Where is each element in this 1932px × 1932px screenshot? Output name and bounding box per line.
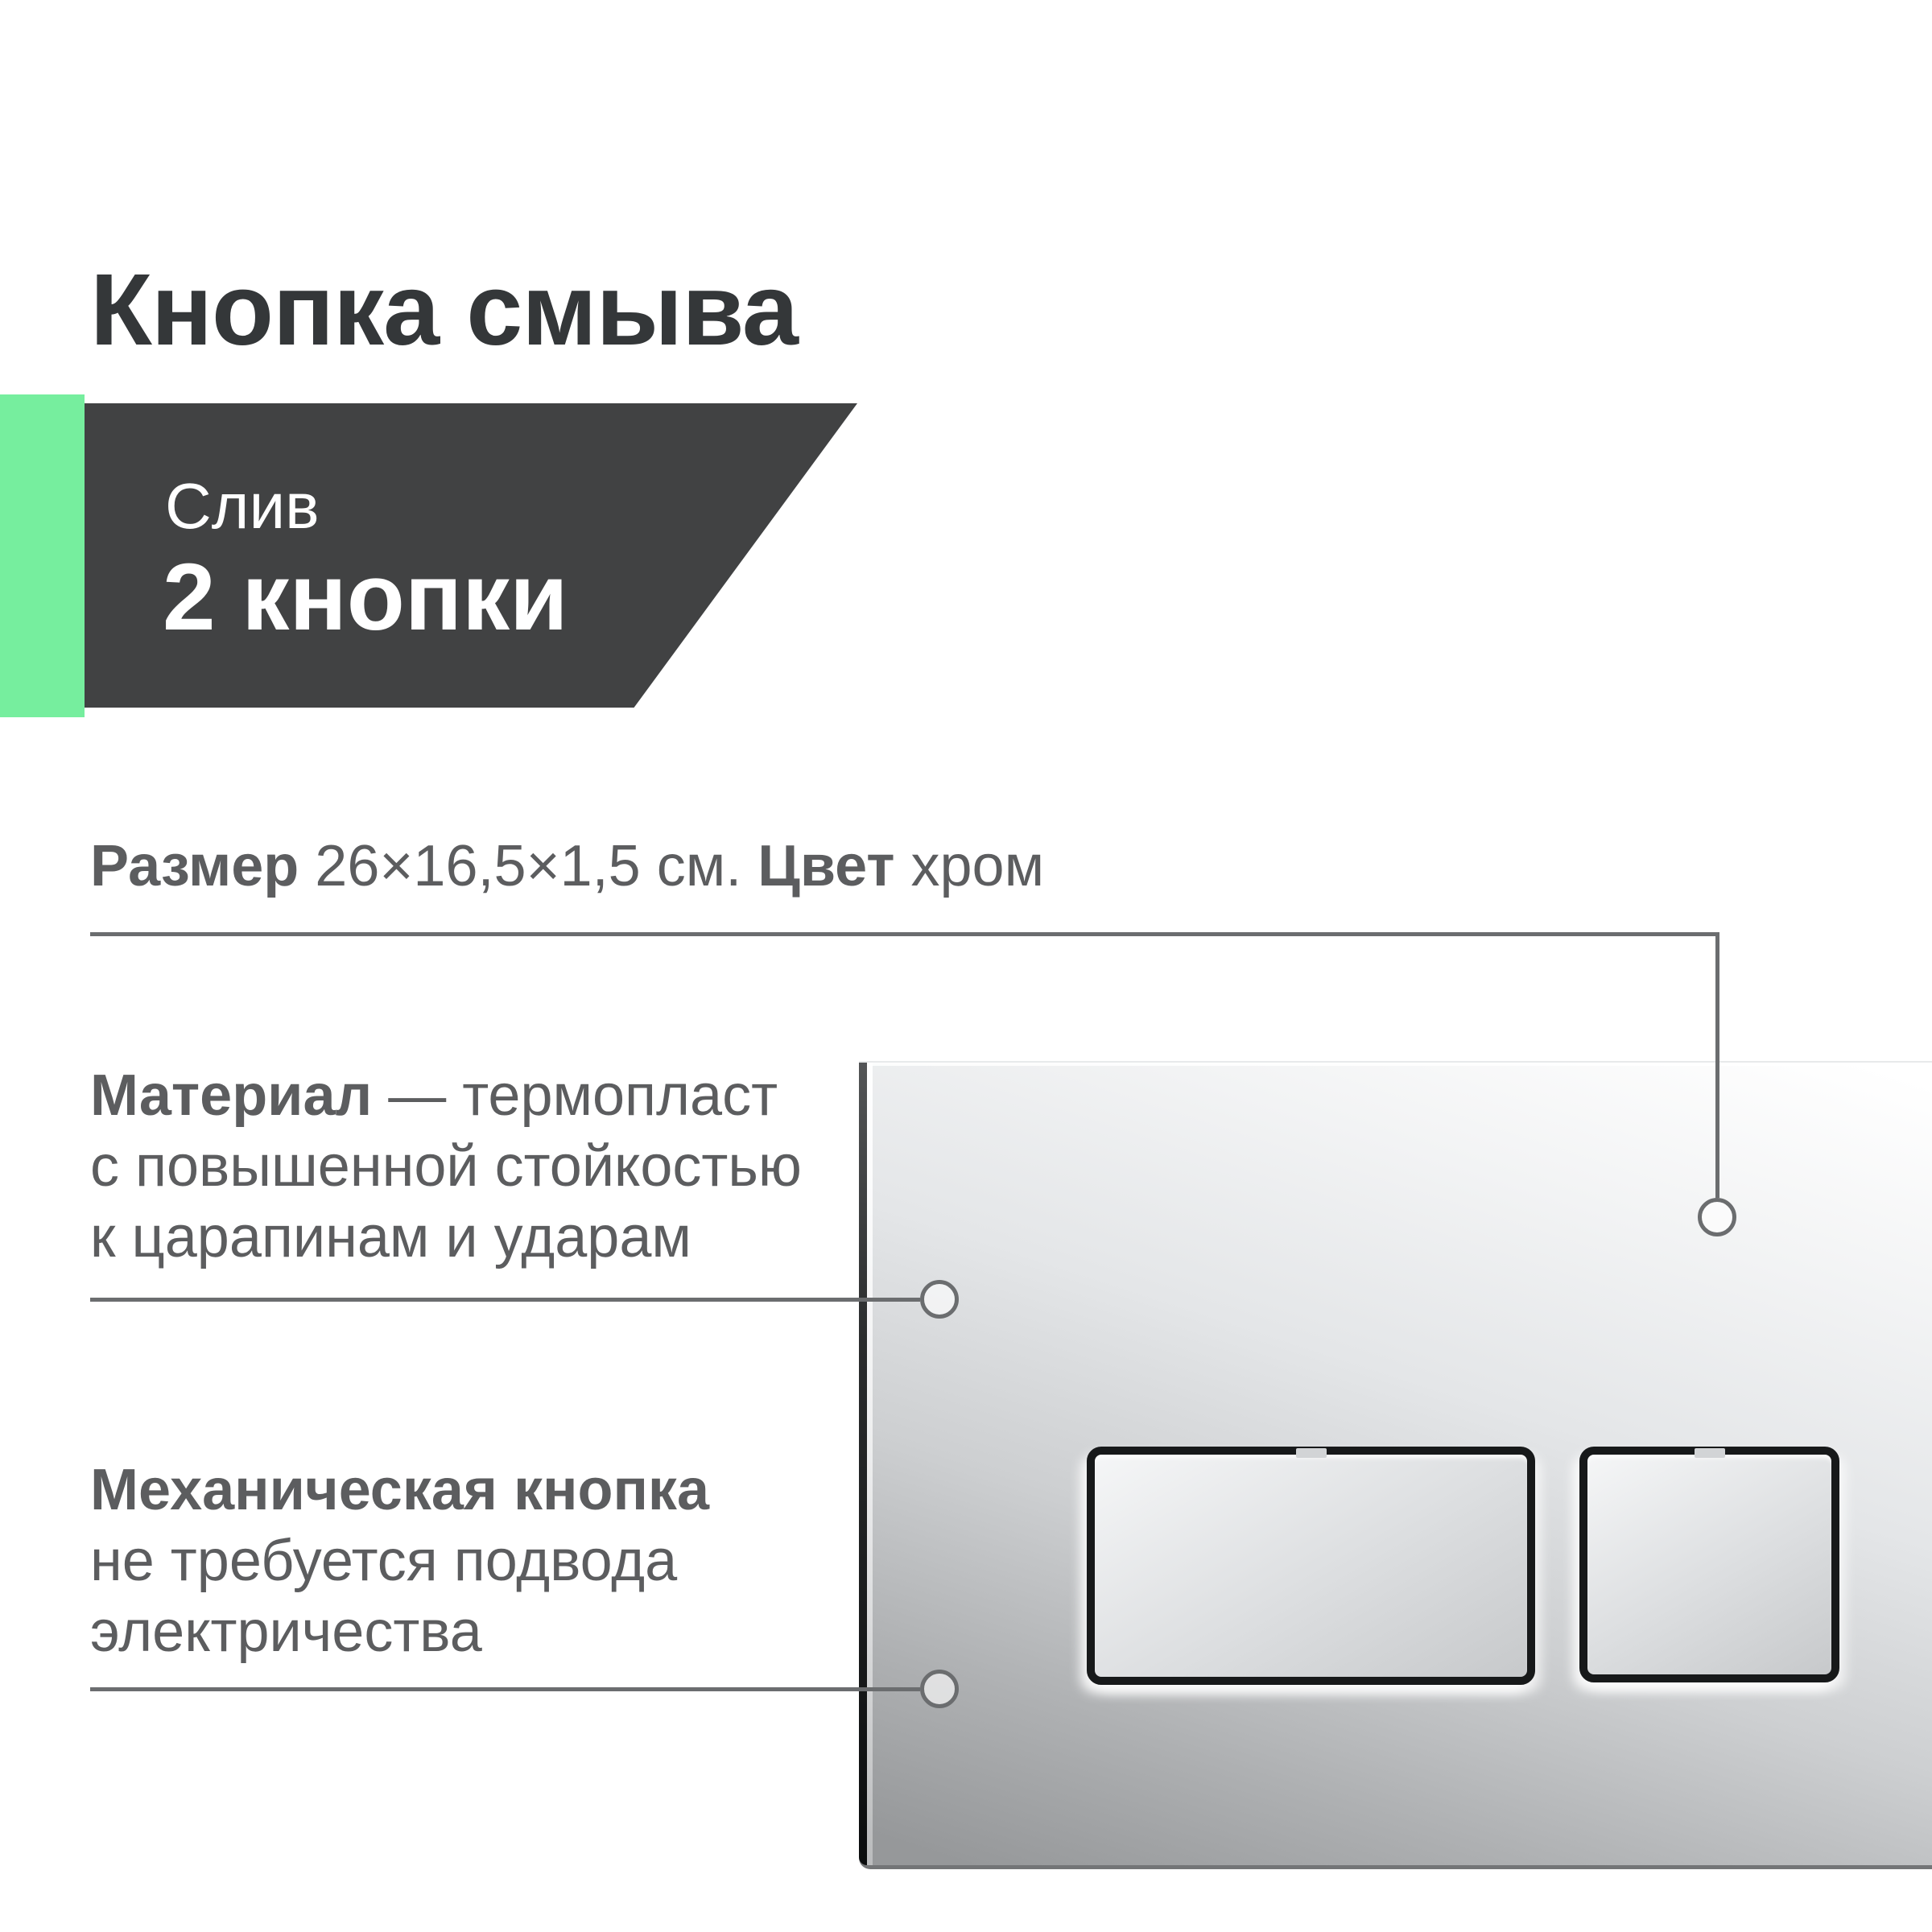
callout-rule-size xyxy=(90,932,1719,936)
specs-size-label: Размер xyxy=(90,834,299,898)
green-accent-bar xyxy=(0,394,85,717)
material-paragraph: Материал — термопласт с повышенной стойк… xyxy=(90,1060,802,1273)
callout-dot-size xyxy=(1698,1198,1736,1236)
button-notch xyxy=(1695,1448,1725,1458)
flush-plate-photo xyxy=(859,1061,1932,1869)
callout-drop-size xyxy=(1715,932,1719,1198)
mechanical-line-2: не требуется подвода xyxy=(90,1525,709,1596)
flush-button-large xyxy=(1087,1447,1535,1685)
button-notch xyxy=(1296,1448,1327,1458)
material-line-1: Материал — термопласт xyxy=(90,1060,802,1131)
page-title: Кнопка смыва xyxy=(90,259,798,361)
mechanical-line-3: электричества xyxy=(90,1596,709,1667)
callout-dot-mechanical xyxy=(920,1670,959,1708)
specs-color-value: хром xyxy=(911,834,1045,898)
infographic-canvas: Кнопка смыва Слив 2 кнопки Размер 26×16,… xyxy=(0,0,1932,1932)
flush-button-small xyxy=(1579,1447,1839,1682)
callout-rule-mechanical xyxy=(90,1687,920,1691)
badge-subtitle: Слив xyxy=(165,474,320,539)
material-line-2: с повышенной стойкостью xyxy=(90,1131,802,1202)
callout-dot-material xyxy=(920,1280,959,1319)
mechanical-paragraph: Механическая кнопка не требуется подвода… xyxy=(90,1455,709,1667)
feature-badge: Слив 2 кнопки xyxy=(85,403,857,708)
mechanical-line-1: Механическая кнопка xyxy=(90,1455,709,1525)
material-lead: Материал xyxy=(90,1063,372,1128)
specs-color-label: Цвет xyxy=(758,834,894,898)
plate-top-highlight xyxy=(867,1063,1930,1066)
material-line-1-rest: — термопласт xyxy=(388,1063,778,1128)
specs-line: Размер 26×16,5×1,5 см. Цвет хром xyxy=(90,837,1044,895)
callout-rule-material xyxy=(90,1298,920,1302)
material-line-3: к царапинам и ударам xyxy=(90,1202,802,1273)
plate-left-edge xyxy=(859,1063,867,1865)
specs-size-value: 26×16,5×1,5 см. xyxy=(315,834,741,898)
badge-title: 2 кнопки xyxy=(163,550,568,645)
plate-left-highlight xyxy=(867,1063,873,1865)
mechanical-lead: Механическая кнопка xyxy=(90,1458,709,1522)
